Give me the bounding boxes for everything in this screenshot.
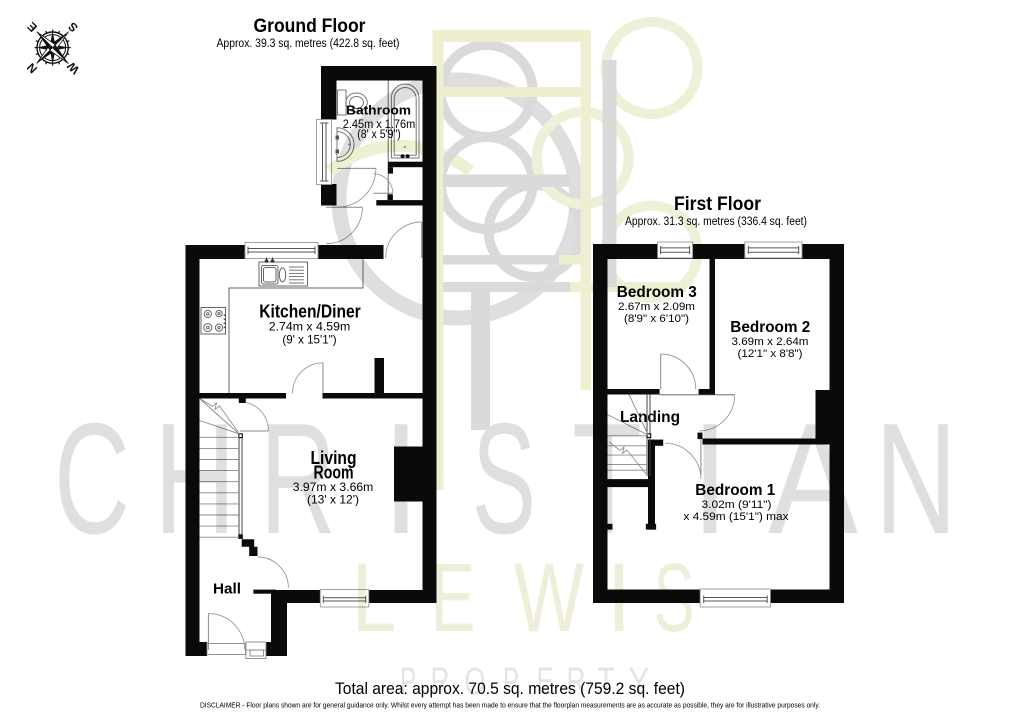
svg-text:Approx. 31.3 sq. metres (336.4: Approx. 31.3 sq. metres (336.4 sq. feet) <box>625 216 807 228</box>
svg-text:R: R <box>260 391 336 567</box>
svg-text:Bedroom 2: Bedroom 2 <box>730 319 810 336</box>
svg-text:(9' x 15'1"): (9' x 15'1") <box>282 332 336 346</box>
svg-text:T: T <box>572 391 642 567</box>
svg-text:R: R <box>431 661 450 703</box>
svg-text:L: L <box>352 543 397 652</box>
svg-text:E: E <box>431 543 476 652</box>
svg-text:C: C <box>54 391 130 567</box>
svg-text:I: I <box>691 391 729 567</box>
svg-text:H: H <box>154 391 236 567</box>
svg-text:I: I <box>607 543 632 652</box>
svg-text:E: E <box>537 661 554 703</box>
svg-text:A: A <box>768 391 859 567</box>
svg-text:Y: Y <box>629 661 650 703</box>
svg-text:Approx. 39.3 sq. metres (422.8: Approx. 39.3 sq. metres (422.8 sq. feet) <box>217 38 400 50</box>
svg-text:2.67m x 2.09m: 2.67m x 2.09m <box>618 301 695 313</box>
svg-text:Hall: Hall <box>213 581 241 597</box>
svg-text:First Floor: First Floor <box>674 194 762 215</box>
svg-text:P: P <box>400 661 416 703</box>
svg-text:N: N <box>875 391 957 567</box>
svg-text:S: S <box>472 391 536 567</box>
svg-text:2.74m x 4.59m: 2.74m x 4.59m <box>269 319 351 333</box>
svg-text:3.69m x 2.64m: 3.69m x 2.64m <box>732 336 809 348</box>
svg-text:P: P <box>503 661 519 703</box>
svg-text:(12'1" x 8'8"): (12'1" x 8'8") <box>738 348 803 360</box>
svg-text:(8'9" x 6'10"): (8'9" x 6'10") <box>624 313 689 325</box>
svg-text:T: T <box>598 661 615 703</box>
svg-text:S: S <box>654 543 695 652</box>
svg-text:O: O <box>465 661 486 703</box>
svg-text:R: R <box>567 661 586 703</box>
svg-text:W: W <box>514 543 584 652</box>
svg-text:I: I <box>382 391 420 567</box>
svg-text:Ground Floor: Ground Floor <box>254 16 367 37</box>
